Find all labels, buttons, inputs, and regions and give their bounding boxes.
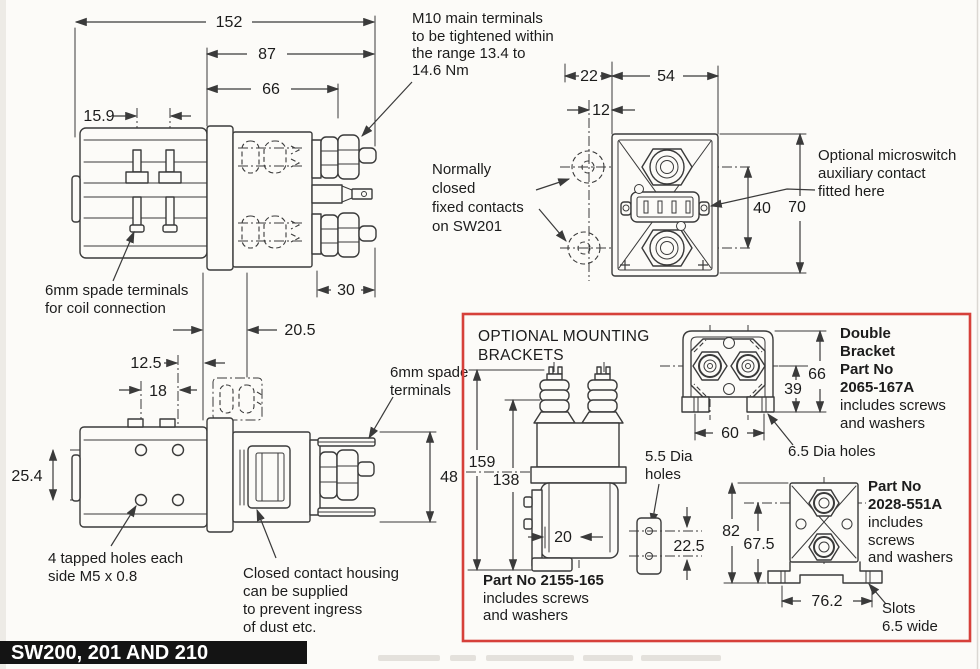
double-bracket-label: Double: [840, 325, 891, 342]
note-5-5-dia: 5.5 Dia: [645, 448, 693, 465]
svg-text:fixed contacts: fixed contacts: [432, 199, 524, 216]
svg-text:terminals: terminals: [390, 382, 451, 399]
panel-title-line1: OPTIONAL MOUNTING: [478, 328, 650, 345]
contact-housing-bottom: [233, 432, 320, 522]
note-spade: 6mm spade terminals: [390, 364, 468, 399]
dim-70: 70: [788, 199, 806, 216]
dim-40: 40: [753, 200, 771, 217]
screw-circle: [635, 185, 644, 194]
svg-text:6mm spade terminals: 6mm spade terminals: [45, 282, 188, 299]
nc-contact-position-markers: [568, 151, 604, 264]
double-bracket-figure: 39 66 60 6.5 Dia holes Double Bracket Pa…: [660, 325, 946, 460]
dim-54: 54: [657, 68, 675, 85]
coil-spade-side: [312, 185, 372, 203]
note-slots: Slots: [882, 600, 915, 617]
svg-text:fitted here: fitted here: [818, 183, 885, 200]
side-view: 152 87 66 15.9 30 20.5: [72, 14, 412, 420]
mounting-flange: [207, 126, 233, 270]
svg-text:on SW201: on SW201: [432, 218, 502, 235]
svg-text:and washers: and washers: [868, 549, 953, 566]
single-bracket-figure: 159 138 20 Part No 2155-165 includes scr…: [466, 362, 626, 624]
part-no-2155-165: Part No 2155-165: [483, 572, 604, 589]
technical-drawing: 152 87 66 15.9 30 20.5: [0, 0, 980, 669]
part-no-2028-551a: Part No: [868, 478, 921, 495]
svg-text:includes screws: includes screws: [483, 590, 589, 607]
dim-22: 22: [580, 68, 598, 85]
dim-66b: 66: [808, 366, 826, 383]
dim-87: 87: [258, 46, 276, 63]
dim-67-5: 67.5: [743, 536, 774, 553]
terminal-stack-right: [582, 367, 623, 423]
mounting-flange-bottom: [207, 418, 233, 532]
end-cap: [72, 176, 80, 222]
svg-text:6.5 wide: 6.5 wide: [882, 618, 938, 635]
dim-30: 30: [337, 282, 355, 299]
terminal-stack-left: [534, 367, 575, 423]
dim-159: 159: [469, 454, 496, 471]
dim-15-9: 15.9: [83, 108, 114, 125]
svg-text:and washers: and washers: [840, 415, 925, 432]
svg-text:Optional microswitch: Optional microswitch: [818, 147, 956, 164]
panel-title-line2: BRACKETS: [478, 347, 564, 364]
bracket-front-figure: 82 67.5 76.2 Part No 2028-551A includes …: [722, 477, 953, 635]
svg-text:the range 13.4 to: the range 13.4 to: [412, 45, 525, 62]
svg-text:Bracket: Bracket: [840, 343, 895, 360]
note-6-5-dia: 6.5 Dia holes: [788, 443, 876, 460]
svg-text:of dust etc.: of dust etc.: [243, 619, 316, 636]
svg-text:screws: screws: [868, 532, 915, 549]
m10-terminal-bottom: [321, 213, 376, 257]
front-view: 22 54 12 40 70: [536, 62, 815, 281]
banner-title: SW200, 201 AND 210: [11, 642, 208, 664]
microswitch: [621, 192, 709, 222]
dim-39: 39: [784, 381, 802, 398]
dim-12-5: 12.5: [130, 355, 161, 372]
dim-48: 48: [440, 469, 458, 486]
dim-66: 66: [262, 81, 280, 98]
faint-print-artifact: [378, 655, 721, 661]
part-no-2065-167a: 2065-167A: [840, 379, 914, 396]
main-terminal-bottom: [642, 230, 692, 266]
svg-text:M10 main terminals: M10 main terminals: [412, 10, 543, 27]
svg-text:to prevent ingress: to prevent ingress: [243, 601, 362, 618]
dim-152: 152: [216, 14, 243, 31]
optional-microswitch-ghost: [213, 378, 262, 420]
note-spade-coil: 6mm spade terminals for coil connection: [45, 282, 188, 317]
drill-plate-figure: 5.5 Dia holes 22.5: [629, 448, 705, 580]
front-view-body: [612, 134, 718, 276]
dim-82: 82: [722, 523, 740, 540]
svg-text:side M5 x 0.8: side M5 x 0.8: [48, 568, 137, 585]
nc-leader-bottom: [539, 209, 566, 241]
dim-22-5: 22.5: [673, 538, 704, 555]
note-tapped-holes: 4 tapped holes each side M5 x 0.8: [48, 550, 183, 585]
svg-text:2028-551A: 2028-551A: [868, 496, 942, 513]
svg-text:closed: closed: [432, 180, 475, 197]
main-terminal-top: [642, 149, 692, 185]
m10-leader: [362, 82, 412, 136]
dim-12: 12: [592, 102, 610, 119]
svg-text:holes: holes: [645, 466, 681, 483]
note-closed-housing: Closed contact housing can be supplied t…: [243, 565, 399, 636]
dim-20: 20: [554, 529, 572, 546]
dim-20-5: 20.5: [284, 322, 315, 339]
svg-text:Normally: Normally: [432, 161, 492, 178]
note-nc-contacts: Normally closed fixed contacts on SW201: [432, 161, 524, 235]
dim-138: 138: [493, 472, 520, 489]
svg-text:includes: includes: [868, 514, 923, 531]
nc-leader-top: [536, 179, 569, 190]
dim-18: 18: [149, 383, 167, 400]
svg-text:6mm spade: 6mm spade: [390, 364, 468, 381]
m10-terminal-top: [321, 135, 376, 179]
svg-text:14.6 Nm: 14.6 Nm: [412, 62, 469, 79]
contact-housing: [233, 132, 321, 267]
svg-text:for coil connection: for coil connection: [45, 300, 166, 317]
svg-text:includes screws: includes screws: [840, 397, 946, 414]
dim-25-4: 25.4: [11, 468, 42, 485]
datasheet-page: 152 87 66 15.9 30 20.5: [0, 0, 980, 669]
screw-circle: [677, 222, 686, 231]
svg-text:Closed contact housing: Closed contact housing: [243, 565, 399, 582]
coil-body-bottom: [72, 419, 207, 527]
mounting-brackets-panel: OPTIONAL MOUNTING BRACKETS: [463, 314, 970, 641]
dim-76-2: 76.2: [811, 593, 842, 610]
svg-text:and washers: and washers: [483, 607, 568, 624]
dim-60: 60: [721, 425, 739, 442]
svg-text:4 tapped holes each: 4 tapped holes each: [48, 550, 183, 567]
contactor-coil-body: [72, 128, 207, 258]
svg-text:can be supplied: can be supplied: [243, 583, 348, 600]
note-microswitch: Optional microswitch auxiliary contact f…: [818, 147, 956, 200]
model-banner: SW200, 201 AND 210: [0, 641, 307, 664]
svg-text:to be tightened within: to be tightened within: [412, 28, 554, 45]
note-m10: M10 main terminals to be tightened withi…: [412, 10, 554, 79]
svg-text:Part No: Part No: [840, 361, 893, 378]
m10-terminal-bottom-view: [318, 438, 375, 516]
svg-text:auxiliary contact: auxiliary contact: [818, 165, 926, 182]
